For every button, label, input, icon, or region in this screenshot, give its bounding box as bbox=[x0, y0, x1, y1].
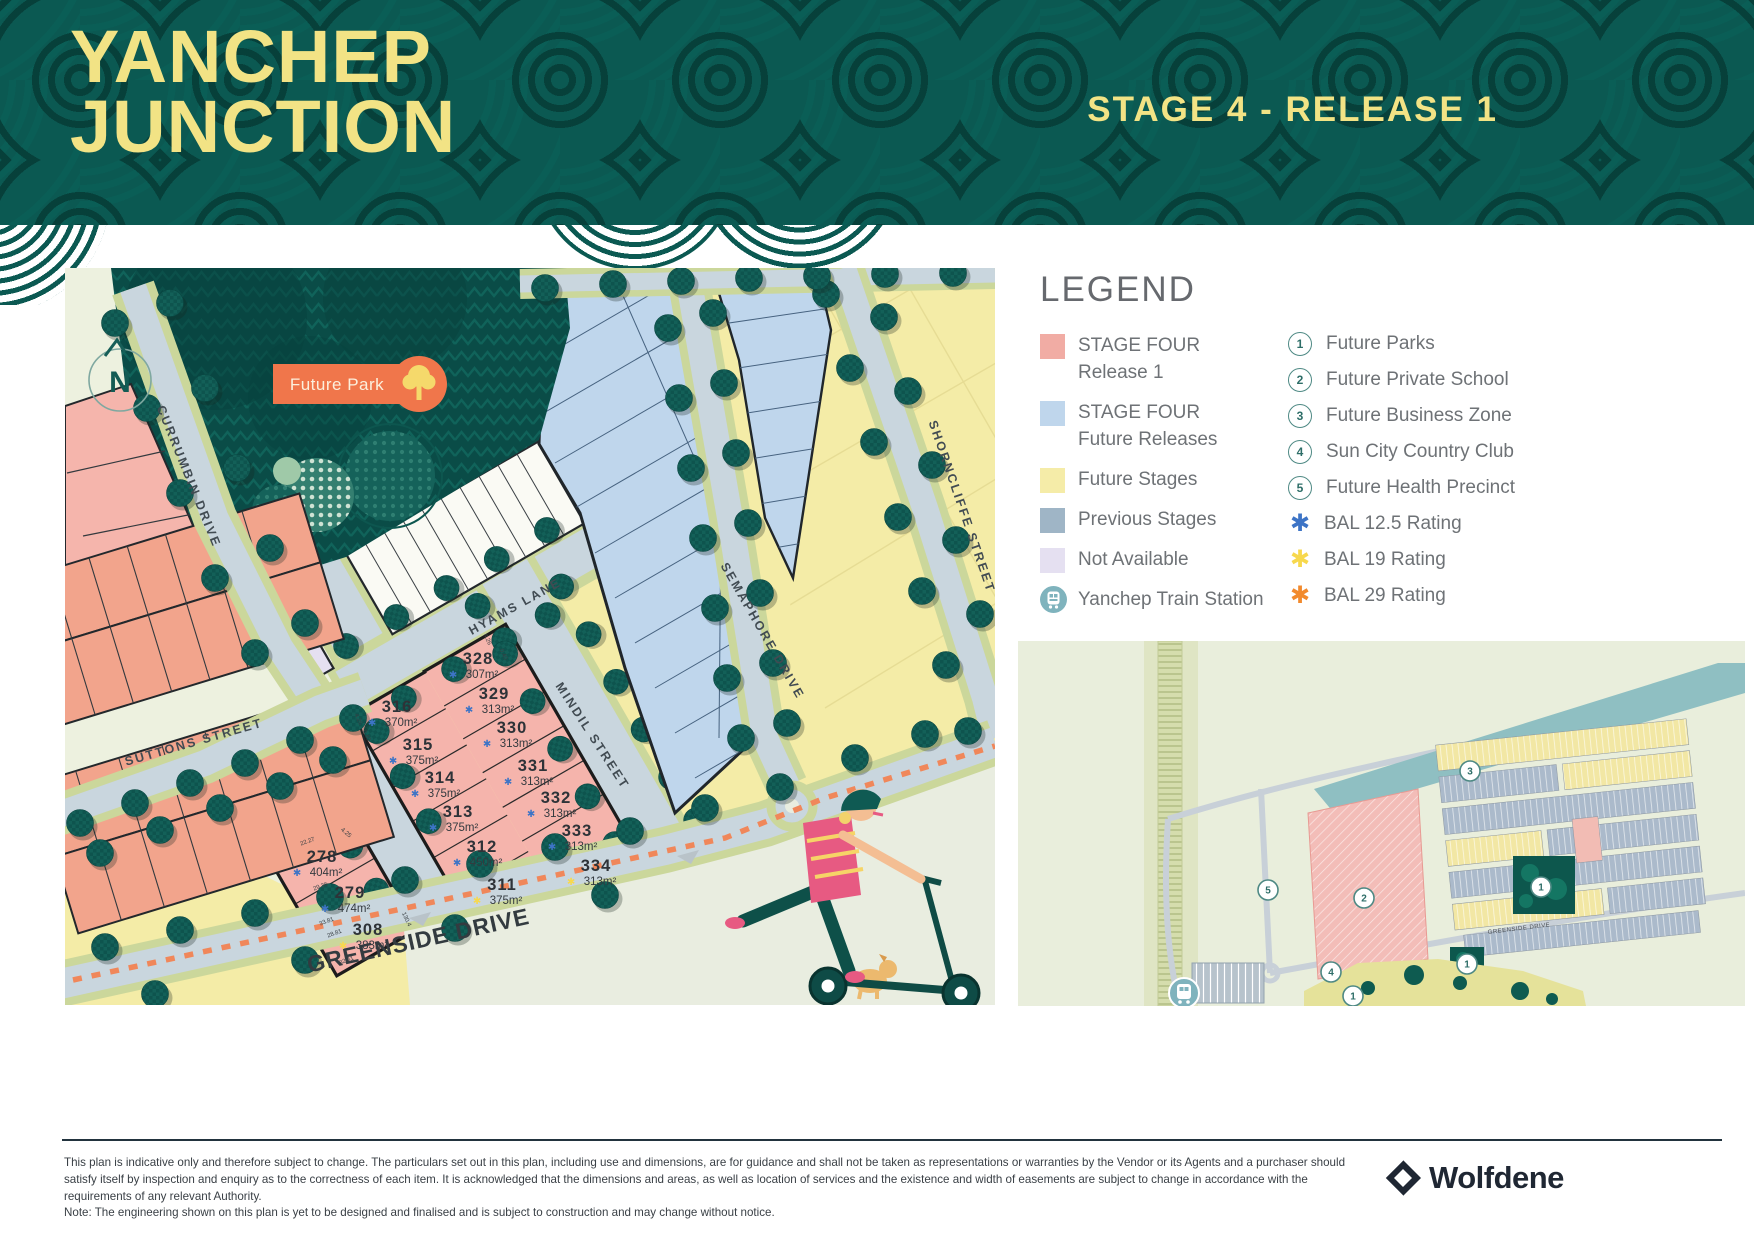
legend-item-previous-stages: Previous Stages bbox=[1040, 506, 1288, 533]
svg-text:375m²: 375m² bbox=[428, 788, 461, 800]
numbered-marker-icon: 2 bbox=[1288, 368, 1312, 392]
svg-text:3: 3 bbox=[1467, 767, 1473, 778]
svg-text:5: 5 bbox=[1265, 886, 1271, 897]
bal-asterisk-icon: ✱ bbox=[1288, 513, 1312, 535]
svg-text:4: 4 bbox=[1328, 968, 1334, 979]
legend-swatch bbox=[1040, 508, 1065, 533]
bal-19-icon: ✱ bbox=[339, 941, 347, 952]
legend-swatch bbox=[1040, 334, 1065, 359]
numbered-marker-icon: 1 bbox=[1288, 332, 1312, 356]
legend-item-not-available: Not Available bbox=[1040, 546, 1288, 573]
bal-12.5-icon: ✱ bbox=[389, 756, 397, 767]
numbered-marker-icon: 4 bbox=[1288, 440, 1312, 464]
disclaimer: This plan is indicative only and therefo… bbox=[64, 1155, 1349, 1222]
train-station-icon bbox=[1169, 978, 1199, 1006]
legend-item-stage-four-release-1: STAGE FOURRelease 1 bbox=[1040, 332, 1288, 386]
svg-text:308: 308 bbox=[353, 921, 384, 939]
context-map: GREENSIDE DRIVE 5231114 bbox=[1018, 641, 1745, 1006]
estate-map: Future Park N CURRUMBIN DRIVESUTTONS STR… bbox=[65, 268, 995, 1005]
ring-cluster-icon bbox=[535, 225, 735, 270]
bal-12.5-icon: ✱ bbox=[483, 739, 491, 750]
future-park-label: Future Park bbox=[290, 375, 384, 394]
legend-item-future-health-precinct: 5Future Health Precinct bbox=[1288, 476, 1568, 499]
north-label: N bbox=[109, 366, 131, 399]
svg-text:313m²: 313m² bbox=[482, 704, 515, 716]
svg-text:307m²: 307m² bbox=[466, 669, 499, 681]
header-banner: YANCHEP JUNCTION STAGE 4 - RELEASE 1 bbox=[0, 0, 1754, 225]
svg-text:311: 311 bbox=[487, 876, 517, 894]
svg-text:375m²: 375m² bbox=[490, 895, 523, 907]
legend-label: Future Health Precinct bbox=[1326, 477, 1515, 499]
legend-label: BAL 19 Rating bbox=[1324, 549, 1446, 571]
bal-12.5-icon: ✱ bbox=[449, 670, 457, 681]
legend-item-future-parks: 1Future Parks bbox=[1288, 332, 1568, 355]
bal-12.5-icon: ✱ bbox=[453, 858, 461, 869]
legend: LEGEND STAGE FOURRelease 1STAGE FOURFutu… bbox=[1040, 270, 1600, 626]
station-parking bbox=[1192, 963, 1264, 1003]
inset-marker-1: 1 bbox=[1531, 877, 1551, 897]
svg-text:330: 330 bbox=[497, 719, 528, 737]
legend-swatch bbox=[1040, 548, 1065, 573]
svg-text:313m²: 313m² bbox=[565, 841, 598, 853]
inset-marker-5: 5 bbox=[1258, 880, 1278, 900]
inset-marker-4: 4 bbox=[1321, 962, 1341, 982]
legend-title: LEGEND bbox=[1040, 270, 1600, 310]
developer-logo: Wolfdene bbox=[1383, 1158, 1564, 1198]
inset-marker-3: 3 bbox=[1460, 761, 1480, 781]
legend-item-stage-four-future-releases: STAGE FOURFuture Releases bbox=[1040, 399, 1288, 453]
legend-label: Future Stages bbox=[1078, 466, 1197, 493]
brand-title: YANCHEP JUNCTION bbox=[70, 22, 456, 163]
legend-swatch bbox=[1040, 468, 1065, 493]
svg-text:450m²: 450m² bbox=[470, 857, 503, 869]
bal-12.5-icon: ✱ bbox=[429, 823, 437, 834]
svg-text:313m²: 313m² bbox=[500, 738, 533, 750]
school-site bbox=[1308, 789, 1428, 979]
stage-title: STAGE 4 - RELEASE 1 bbox=[1087, 90, 1498, 130]
future-park-badge: Future Park bbox=[273, 356, 447, 412]
svg-text:328: 328 bbox=[463, 650, 494, 668]
legend-label: Future Private School bbox=[1326, 369, 1509, 391]
brand-line1: YANCHEP bbox=[70, 22, 456, 92]
svg-text:474m²: 474m² bbox=[338, 903, 371, 915]
inset-marker-2: 2 bbox=[1354, 888, 1374, 908]
legend-label: Not Available bbox=[1078, 546, 1189, 573]
disclaimer-text: This plan is indicative only and therefo… bbox=[64, 1156, 1345, 1203]
inset-marker-1: 1 bbox=[1457, 954, 1477, 974]
svg-text:333: 333 bbox=[562, 822, 593, 840]
svg-text:313: 313 bbox=[443, 803, 474, 821]
ring-cluster-icon bbox=[697, 225, 902, 270]
bal-12.5-icon: ✱ bbox=[504, 777, 512, 788]
page: YANCHEP JUNCTION STAGE 4 - RELEASE 1 bbox=[0, 0, 1754, 1241]
svg-text:331: 331 bbox=[518, 757, 549, 775]
legend-label: Yanchep Train Station bbox=[1078, 586, 1264, 613]
svg-text:313m²: 313m² bbox=[544, 808, 577, 820]
train-station-icon bbox=[1040, 586, 1067, 613]
bal-12.5-icon: ✱ bbox=[411, 789, 419, 800]
legend-item-bal-29-rating: ✱BAL 29 Rating bbox=[1288, 584, 1568, 607]
legend-label: STAGE FOURFuture Releases bbox=[1078, 399, 1217, 453]
numbered-marker-icon: 3 bbox=[1288, 404, 1312, 428]
wolfdene-diamond-icon bbox=[1383, 1158, 1423, 1198]
legend-label: BAL 12.5 Rating bbox=[1324, 513, 1462, 535]
bal-asterisk-icon: ✱ bbox=[1288, 549, 1312, 571]
svg-text:313m²: 313m² bbox=[521, 776, 554, 788]
svg-text:314: 314 bbox=[425, 769, 456, 787]
svg-text:315: 315 bbox=[403, 736, 434, 754]
svg-text:1: 1 bbox=[1538, 883, 1544, 894]
bal-12.5-icon: ✱ bbox=[321, 904, 329, 915]
bal-12.5-icon: ✱ bbox=[368, 718, 376, 729]
legend-label: Previous Stages bbox=[1078, 506, 1216, 533]
legend-item-yanchep-train-station: Yanchep Train Station bbox=[1040, 586, 1288, 613]
legend-label: Future Parks bbox=[1326, 333, 1435, 355]
svg-text:313m²: 313m² bbox=[584, 876, 617, 888]
bal-12.5-icon: ✱ bbox=[548, 842, 556, 853]
svg-text:383m²: 383m² bbox=[356, 940, 389, 952]
svg-text:334: 334 bbox=[581, 857, 612, 875]
svg-text:375m²: 375m² bbox=[406, 755, 439, 767]
bal-asterisk-icon: ✱ bbox=[1288, 585, 1312, 607]
disclaimer-note: Note: The engineering shown on this plan… bbox=[64, 1205, 1349, 1222]
bal-19-icon: ✱ bbox=[473, 896, 481, 907]
svg-text:278: 278 bbox=[307, 848, 338, 866]
numbered-marker-icon: 5 bbox=[1288, 476, 1312, 500]
brand-line2: JUNCTION bbox=[70, 92, 456, 162]
legend-label: Sun City Country Club bbox=[1326, 441, 1514, 463]
inset-marker-1: 1 bbox=[1343, 986, 1363, 1006]
svg-text:312: 312 bbox=[467, 838, 498, 856]
svg-text:370m²: 370m² bbox=[385, 717, 418, 729]
legend-item-future-stages: Future Stages bbox=[1040, 466, 1288, 493]
legend-item-future-business-zone: 3Future Business Zone bbox=[1288, 404, 1568, 427]
svg-text:375m²: 375m² bbox=[446, 822, 479, 834]
bal-12.5-icon: ✱ bbox=[527, 809, 535, 820]
svg-text:329: 329 bbox=[479, 685, 510, 703]
bal-19-icon: ✱ bbox=[567, 877, 575, 888]
footer-divider bbox=[62, 1139, 1722, 1141]
svg-text:279: 279 bbox=[335, 884, 366, 902]
legend-label: BAL 29 Rating bbox=[1324, 585, 1446, 607]
legend-item-sun-city-country-club: 4Sun City Country Club bbox=[1288, 440, 1568, 463]
wolfdene-logo-text: Wolfdene bbox=[1429, 1160, 1564, 1196]
svg-text:1: 1 bbox=[1350, 992, 1356, 1003]
legend-item-bal-19-rating: ✱BAL 19 Rating bbox=[1288, 548, 1568, 571]
legend-item-bal-12-5-rating: ✱BAL 12.5 Rating bbox=[1288, 512, 1568, 535]
svg-text:316: 316 bbox=[382, 698, 413, 716]
legend-label: Future Business Zone bbox=[1326, 405, 1512, 427]
svg-text:1: 1 bbox=[1464, 960, 1470, 971]
legend-item-future-private-school: 2Future Private School bbox=[1288, 368, 1568, 391]
svg-text:332: 332 bbox=[541, 789, 572, 807]
legend-label: STAGE FOURRelease 1 bbox=[1078, 332, 1200, 386]
legend-swatch bbox=[1040, 401, 1065, 426]
svg-text:404m²: 404m² bbox=[310, 867, 343, 879]
bal-12.5-icon: ✱ bbox=[293, 868, 301, 879]
bal-12.5-icon: ✱ bbox=[465, 705, 473, 716]
svg-text:2: 2 bbox=[1361, 894, 1367, 905]
